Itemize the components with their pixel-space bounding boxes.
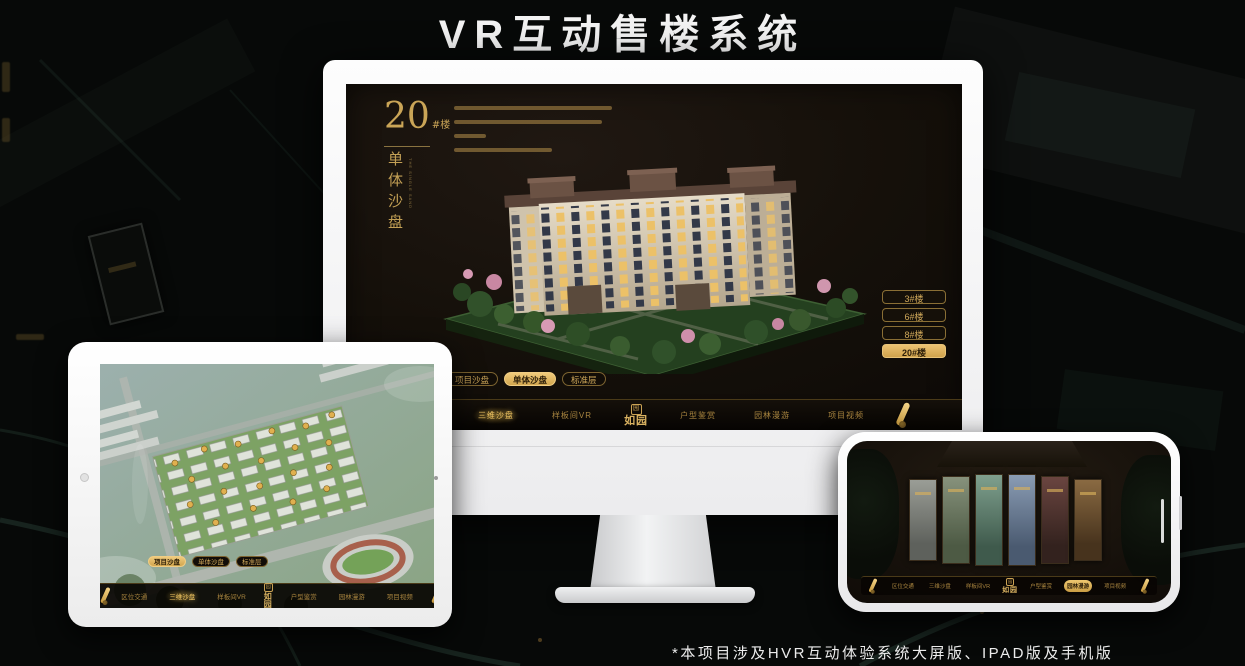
scene-gallery bbox=[909, 479, 1102, 566]
phone-brand-logo[interactable]: 园 如园 bbox=[1002, 578, 1018, 594]
phone-nav-showroom-vr[interactable]: 样板间VR bbox=[963, 580, 993, 592]
monitor-stand-neck bbox=[590, 515, 716, 591]
footnote: *本项目涉及HVR互动体验系统大屏版、IPAD版及手机版 bbox=[672, 642, 1113, 663]
interior-ceiling bbox=[937, 441, 1087, 467]
phone-bottom-nav: 区位交通 三维沙盘 样板间VR 园 如园 户型鉴赏 园林漫游 项目视频 bbox=[861, 576, 1157, 595]
aerial-masterplan-render bbox=[100, 364, 434, 608]
tablet-nav-project-video[interactable]: 项目视频 bbox=[383, 589, 417, 603]
floor-button-20[interactable]: 20#楼 bbox=[882, 344, 946, 358]
tablet-nav-floorplans[interactable]: 户型鉴赏 bbox=[287, 589, 321, 603]
brand-logo-text: 如园 bbox=[264, 593, 273, 608]
gallery-panel-6[interactable] bbox=[1074, 479, 1102, 561]
scroll-icon-left[interactable] bbox=[100, 587, 102, 605]
gold-divider bbox=[384, 146, 430, 147]
tablet-view-tabs: 项目沙盘 单体沙盘 标准层 bbox=[148, 556, 268, 567]
poster: VR互动售楼系统 20#楼 单体沙盘 THE SINGLE SAND bbox=[0, 0, 1245, 666]
side-button[interactable] bbox=[1179, 496, 1182, 530]
phone-screen: 区位交通 三维沙盘 样板间VR 园 如园 户型鉴赏 园林漫游 项目视频 bbox=[847, 441, 1171, 603]
brand-logo-text: 如园 bbox=[624, 416, 648, 427]
floor-selector: 3#楼 6#楼 8#楼 20#楼 bbox=[882, 290, 946, 358]
gallery-panel-3[interactable] bbox=[975, 474, 1003, 566]
tablet-bottom-nav: 区位交通 三维沙盘 样板间VR 园 如园 户型鉴赏 园林漫游 项目视频 bbox=[100, 583, 434, 608]
tab-single-sandtable[interactable]: 单体沙盘 bbox=[504, 372, 556, 386]
scroll-icon-right[interactable] bbox=[1141, 578, 1149, 594]
building-number: 20#楼 bbox=[384, 100, 450, 143]
gallery-panel-2[interactable] bbox=[942, 476, 970, 564]
tablet-nav-3d-sandtable[interactable]: 三维沙盘 bbox=[165, 589, 199, 603]
phone-device: 区位交通 三维沙盘 样板间VR 园 如园 户型鉴赏 园林漫游 项目视频 bbox=[838, 432, 1180, 612]
plant-silhouette-left bbox=[847, 449, 899, 579]
floor-button-8[interactable]: 8#楼 bbox=[882, 326, 946, 340]
nav-item-floorplans[interactable]: 户型鉴赏 bbox=[674, 407, 722, 424]
view-tabs: 项目沙盘 单体沙盘 标准层 bbox=[446, 372, 606, 386]
nav-item-3d-sandtable[interactable]: 三维沙盘 bbox=[472, 407, 520, 424]
map-gold-label-3 bbox=[16, 334, 44, 340]
nav-item-garden-roam[interactable]: 园林漫游 bbox=[748, 407, 796, 424]
seal-icon: 园 bbox=[631, 404, 642, 415]
gallery-panel-5[interactable] bbox=[1041, 476, 1069, 564]
tablet-nav-showroom-vr[interactable]: 样板间VR bbox=[213, 589, 250, 603]
tablet-device: 项目沙盘 单体沙盘 标准层 区位交通 三维沙盘 样板间VR 园 如园 户型鉴赏 … bbox=[68, 342, 452, 627]
section-subtitle-en: THE SINGLE SAND bbox=[408, 158, 413, 209]
floor-button-6[interactable]: 6#楼 bbox=[882, 308, 946, 322]
tablet-nav-location[interactable]: 区位交通 bbox=[117, 589, 151, 603]
tablet-tab-standard-floor[interactable]: 标准层 bbox=[236, 556, 268, 567]
brand-logo[interactable]: 园 如园 bbox=[624, 404, 648, 427]
front-camera-icon bbox=[80, 473, 89, 482]
tablet-tab-project-sandtable[interactable]: 项目沙盘 bbox=[148, 556, 186, 567]
phone-nav-location[interactable]: 区位交通 bbox=[889, 580, 917, 592]
brand-logo-text: 如园 bbox=[1002, 587, 1018, 594]
home-button[interactable] bbox=[434, 476, 438, 480]
scroll-icon-right[interactable] bbox=[431, 587, 433, 605]
seal-icon: 园 bbox=[264, 583, 273, 592]
phone-nav-project-video[interactable]: 项目视频 bbox=[1101, 580, 1129, 592]
floor-button-3[interactable]: 3#楼 bbox=[882, 290, 946, 304]
map-gold-label bbox=[2, 62, 10, 92]
tablet-screen: 项目沙盘 单体沙盘 标准层 区位交通 三维沙盘 样板间VR 园 如园 户型鉴赏 … bbox=[100, 364, 434, 608]
home-indicator[interactable] bbox=[1161, 499, 1164, 543]
tablet-tab-single-sandtable[interactable]: 单体沙盘 bbox=[192, 556, 230, 567]
page-title: VR互动售楼系统 bbox=[0, 2, 1245, 60]
section-title-vertical: 单体沙盘 bbox=[384, 151, 405, 247]
phone-nav-floorplans[interactable]: 户型鉴赏 bbox=[1027, 580, 1055, 592]
gallery-panel-4[interactable] bbox=[1008, 474, 1036, 566]
tab-project-sandtable[interactable]: 项目沙盘 bbox=[446, 372, 498, 386]
map-gold-label-2 bbox=[2, 118, 10, 142]
phone-nav-3d-sandtable[interactable]: 三维沙盘 bbox=[926, 580, 954, 592]
nav-item-project-video[interactable]: 项目视频 bbox=[822, 407, 870, 424]
scroll-icon-left[interactable] bbox=[869, 578, 877, 594]
monitor-stand-base bbox=[555, 587, 755, 603]
scroll-icon[interactable] bbox=[896, 402, 910, 428]
phone-nav-garden-roam[interactable]: 园林漫游 bbox=[1064, 580, 1092, 592]
gallery-panel-1[interactable] bbox=[909, 479, 937, 561]
seal-icon: 园 bbox=[1006, 578, 1014, 586]
tab-standard-floor[interactable]: 标准层 bbox=[562, 372, 606, 386]
tablet-nav-garden-roam[interactable]: 园林漫游 bbox=[335, 589, 369, 603]
nav-item-showroom-vr[interactable]: 样板间VR bbox=[546, 407, 598, 424]
tablet-brand-logo[interactable]: 园 如园 bbox=[264, 583, 273, 608]
building-render bbox=[438, 154, 870, 374]
